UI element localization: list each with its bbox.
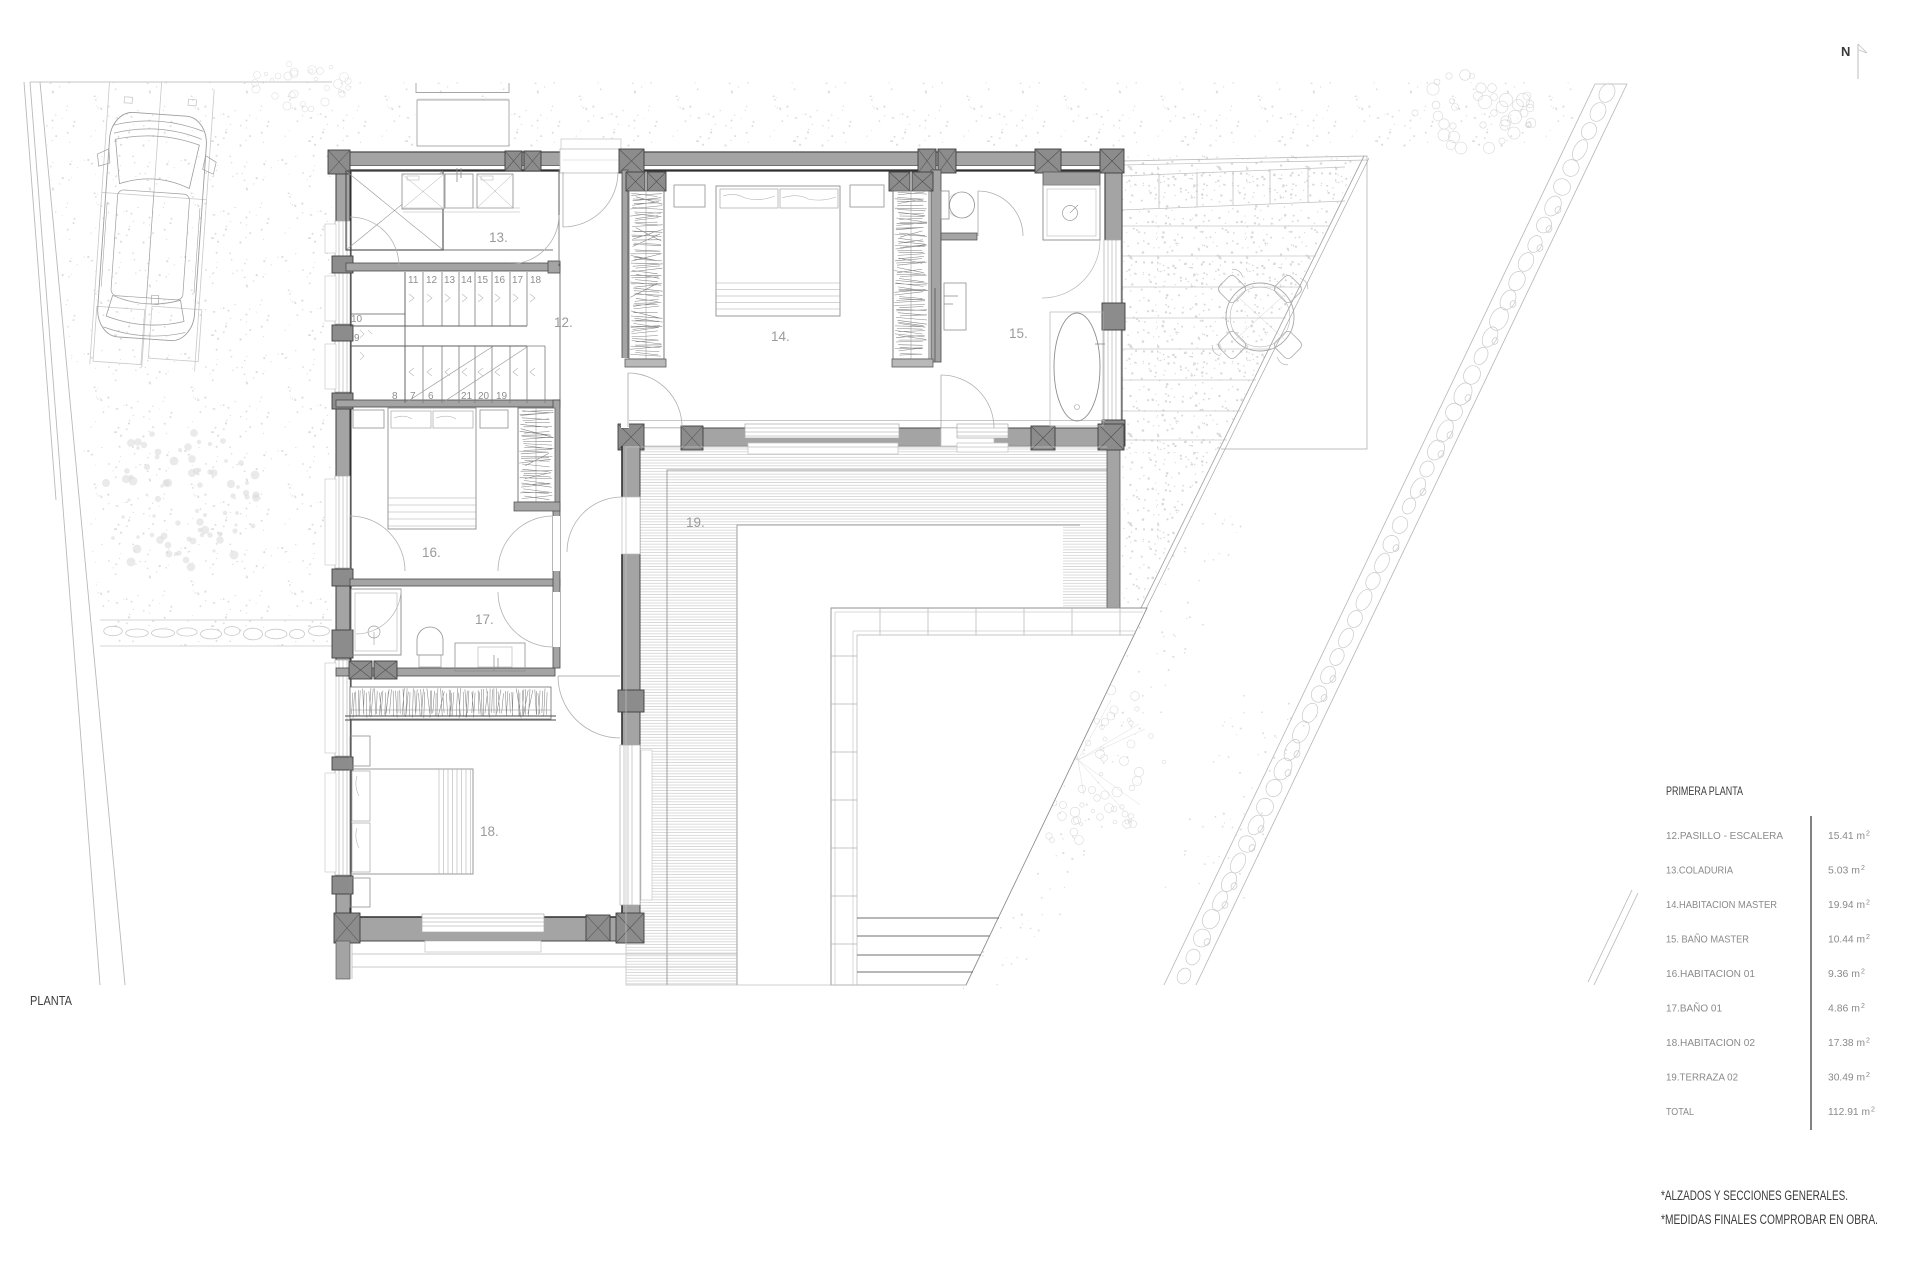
svg-text:14: 14 [461, 275, 473, 286]
svg-text:14.: 14. [771, 329, 790, 344]
svg-text:2: 2 [1866, 1038, 1870, 1045]
svg-text:2: 2 [1866, 831, 1870, 838]
svg-text:2: 2 [1861, 969, 1865, 976]
svg-text:17.: 17. [475, 612, 494, 627]
svg-text:15.: 15. [1009, 326, 1028, 341]
svg-text:8: 8 [392, 391, 398, 402]
svg-text:19.TERRAZA 02: 19.TERRAZA 02 [1666, 1072, 1738, 1084]
svg-text:17: 17 [512, 275, 524, 286]
svg-text:13: 13 [444, 275, 456, 286]
svg-text:16.: 16. [422, 545, 441, 560]
svg-text:2: 2 [1861, 865, 1865, 872]
svg-text:6: 6 [428, 391, 434, 402]
svg-text:15.41 m: 15.41 m [1828, 830, 1865, 842]
svg-text:18.: 18. [480, 824, 499, 839]
svg-text:19: 19 [496, 391, 508, 402]
svg-text:2: 2 [1871, 1107, 1875, 1114]
svg-text:17.38 m: 17.38 m [1828, 1037, 1865, 1049]
svg-text:18.HABITACION 02: 18.HABITACION 02 [1666, 1037, 1755, 1049]
svg-text:15: 15 [477, 275, 489, 286]
svg-text:N: N [1841, 44, 1850, 59]
svg-text:20: 20 [478, 391, 490, 402]
svg-text:*MEDIDAS FINALES COMPROBAR EN: *MEDIDAS FINALES COMPROBAR EN OBRA. [1661, 1212, 1878, 1227]
svg-text:12.PASILLO - ESCALERA: 12.PASILLO - ESCALERA [1666, 830, 1783, 842]
svg-text:PRIMERA PLANTA: PRIMERA PLANTA [1666, 786, 1743, 798]
svg-text:11: 11 [408, 275, 419, 286]
svg-text:9: 9 [354, 333, 360, 344]
svg-text:17.BAÑO 01: 17.BAÑO 01 [1666, 1002, 1722, 1015]
svg-text:2: 2 [1866, 934, 1870, 941]
svg-text:16: 16 [494, 275, 506, 286]
svg-text:14.HABITACION MASTER: 14.HABITACION MASTER [1666, 899, 1777, 911]
svg-text:112.91 m: 112.91 m [1828, 1106, 1870, 1118]
svg-text:13.COLADURIA: 13.COLADURIA [1666, 865, 1733, 877]
svg-text:9.36 m: 9.36 m [1828, 968, 1860, 980]
svg-text:PLANTA: PLANTA [30, 994, 73, 1008]
svg-text:18: 18 [530, 275, 542, 286]
svg-text:19.: 19. [686, 515, 705, 530]
svg-text:*ALZADOS Y SECCIONES GENERALES: *ALZADOS Y SECCIONES GENERALES. [1661, 1188, 1848, 1203]
svg-text:2: 2 [1866, 900, 1870, 907]
svg-text:12: 12 [426, 275, 438, 286]
svg-text:15. BAÑO MASTER: 15. BAÑO MASTER [1666, 933, 1749, 946]
svg-text:5.03 m: 5.03 m [1828, 865, 1860, 877]
svg-text:2: 2 [1861, 1003, 1865, 1010]
svg-text:4.86 m: 4.86 m [1828, 1003, 1860, 1015]
svg-text:16.HABITACION 01: 16.HABITACION 01 [1666, 968, 1755, 980]
svg-text:13.: 13. [489, 230, 508, 245]
svg-text:19.94 m: 19.94 m [1828, 899, 1865, 911]
svg-text:7: 7 [410, 391, 416, 402]
svg-text:TOTAL: TOTAL [1666, 1106, 1694, 1118]
svg-text:10.44 m: 10.44 m [1828, 934, 1865, 946]
svg-text:12.: 12. [554, 315, 573, 330]
svg-text:21: 21 [461, 391, 473, 402]
svg-text:30.49 m: 30.49 m [1828, 1072, 1865, 1084]
svg-text:10: 10 [351, 314, 363, 325]
svg-text:2: 2 [1866, 1072, 1870, 1079]
